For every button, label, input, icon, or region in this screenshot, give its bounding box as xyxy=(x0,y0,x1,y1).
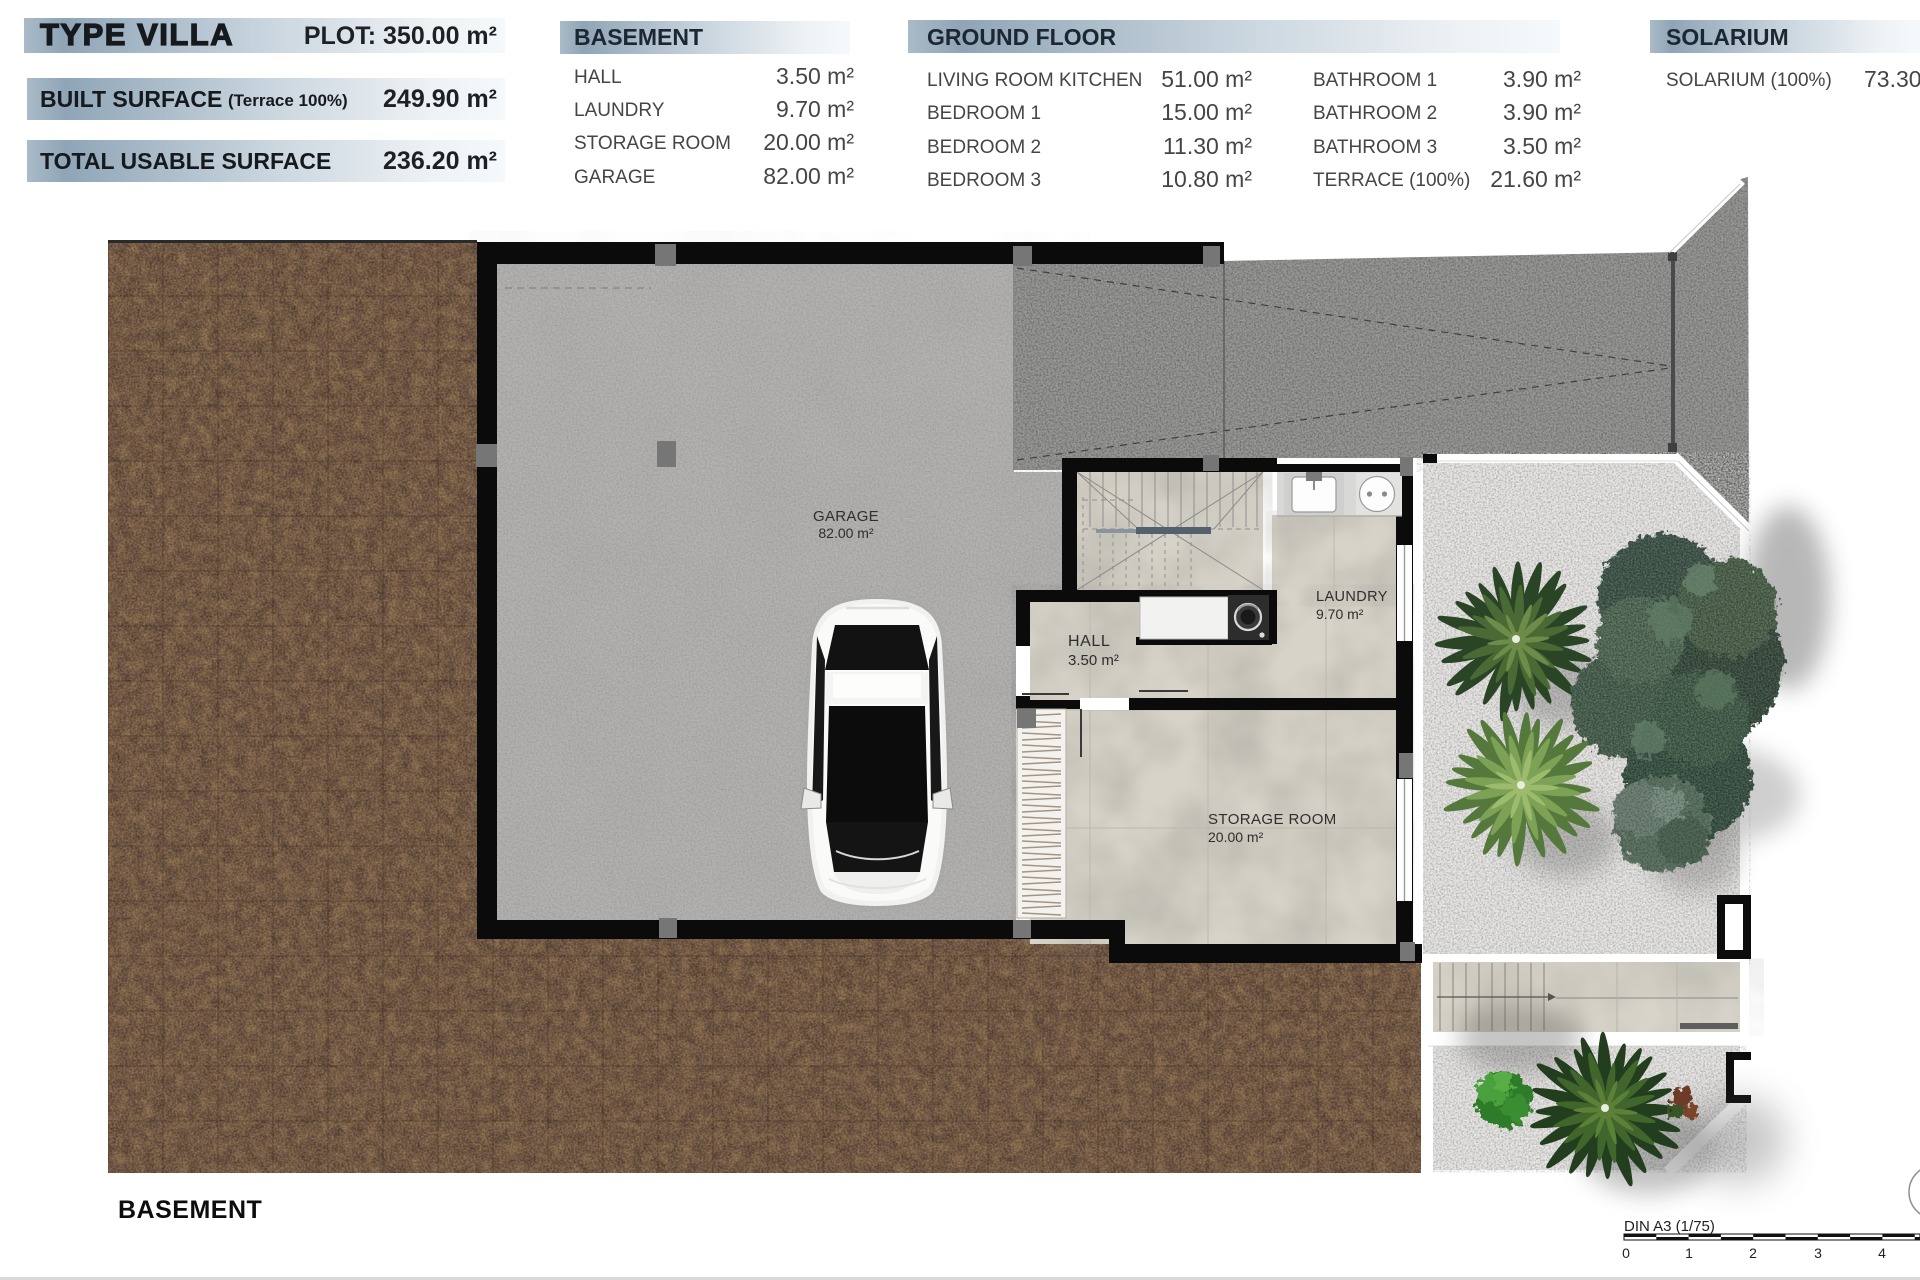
svg-text:BASEMENT: BASEMENT xyxy=(118,1196,262,1224)
svg-text:3.50 m²: 3.50 m² xyxy=(776,63,854,89)
svg-text:236.20 m²: 236.20 m² xyxy=(383,147,497,175)
svg-text:3.90 m²: 3.90 m² xyxy=(1503,99,1581,125)
svg-text:0: 0 xyxy=(1622,1245,1630,1261)
svg-text:20.00 m²: 20.00 m² xyxy=(1208,829,1264,845)
svg-text:3.90 m²: 3.90 m² xyxy=(1503,66,1581,92)
svg-text:9.70 m²: 9.70 m² xyxy=(776,96,854,122)
svg-text:LAUNDRY: LAUNDRY xyxy=(1316,589,1388,605)
svg-text:LAUNDRY: LAUNDRY xyxy=(574,100,665,121)
svg-text:SOLARIUM (100%): SOLARIUM (100%) xyxy=(1666,70,1832,91)
svg-text:BEDROOM 1: BEDROOM 1 xyxy=(927,103,1041,124)
svg-text:TERRACE (100%): TERRACE (100%) xyxy=(1313,170,1470,191)
svg-text:STORAGE ROOM: STORAGE ROOM xyxy=(1208,811,1337,828)
svg-text:TYPE VILLA: TYPE VILLA xyxy=(40,17,234,52)
svg-text:4: 4 xyxy=(1878,1245,1886,1261)
svg-text:20.00 m²: 20.00 m² xyxy=(763,129,854,155)
svg-text:STORAGE ROOM: STORAGE ROOM xyxy=(574,133,731,154)
svg-text:GARAGE: GARAGE xyxy=(813,508,879,525)
svg-text:DIN A3 (1/75): DIN A3 (1/75) xyxy=(1624,1218,1715,1235)
svg-text:(Terrace 100%): (Terrace 100%) xyxy=(228,91,348,110)
svg-text:11.30 m²: 11.30 m² xyxy=(1163,133,1252,159)
svg-text:BATHROOM 3: BATHROOM 3 xyxy=(1313,137,1437,158)
svg-text:GROUND FLOOR: GROUND FLOOR xyxy=(927,24,1116,50)
svg-text:BASEMENT: BASEMENT xyxy=(574,24,703,50)
svg-text:3.50 m²: 3.50 m² xyxy=(1068,652,1119,669)
svg-text:BEDROOM 2: BEDROOM 2 xyxy=(927,137,1041,158)
svg-text:1: 1 xyxy=(1685,1245,1693,1261)
svg-text:21.60 m²: 21.60 m² xyxy=(1490,166,1581,192)
svg-text:73.30 m²: 73.30 m² xyxy=(1864,66,1920,92)
svg-text:BATHROOM 1: BATHROOM 1 xyxy=(1313,70,1437,91)
svg-text:9.70 m²: 9.70 m² xyxy=(1316,606,1364,622)
svg-text:SOLARIUM: SOLARIUM xyxy=(1666,24,1789,50)
svg-text:GARAGE: GARAGE xyxy=(574,167,655,188)
svg-text:3.50 m²: 3.50 m² xyxy=(1503,133,1581,159)
svg-text:BATHROOM 2: BATHROOM 2 xyxy=(1313,103,1437,124)
svg-text:82.00 m²: 82.00 m² xyxy=(763,163,854,189)
svg-text:249.90 m²: 249.90 m² xyxy=(383,85,497,113)
svg-text:LIVING ROOM KITCHEN: LIVING ROOM KITCHEN xyxy=(927,70,1142,91)
svg-text:82.00 m²: 82.00 m² xyxy=(818,525,874,541)
svg-text:HALL: HALL xyxy=(1068,633,1110,650)
svg-text:BEDROOM 3: BEDROOM 3 xyxy=(927,170,1041,191)
svg-text:TOTAL USABLE SURFACE: TOTAL USABLE SURFACE xyxy=(40,148,331,174)
svg-text:BUILT SURFACE: BUILT SURFACE xyxy=(40,86,222,112)
svg-text:3: 3 xyxy=(1814,1245,1822,1261)
svg-text:10.80 m²: 10.80 m² xyxy=(1161,166,1252,192)
svg-text:51.00 m²: 51.00 m² xyxy=(1161,66,1252,92)
svg-text:HALL: HALL xyxy=(574,67,622,88)
svg-text:2: 2 xyxy=(1749,1245,1757,1261)
svg-text:15.00 m²: 15.00 m² xyxy=(1161,99,1252,125)
svg-text:PLOT: 350.00 m²: PLOT: 350.00 m² xyxy=(304,22,497,50)
